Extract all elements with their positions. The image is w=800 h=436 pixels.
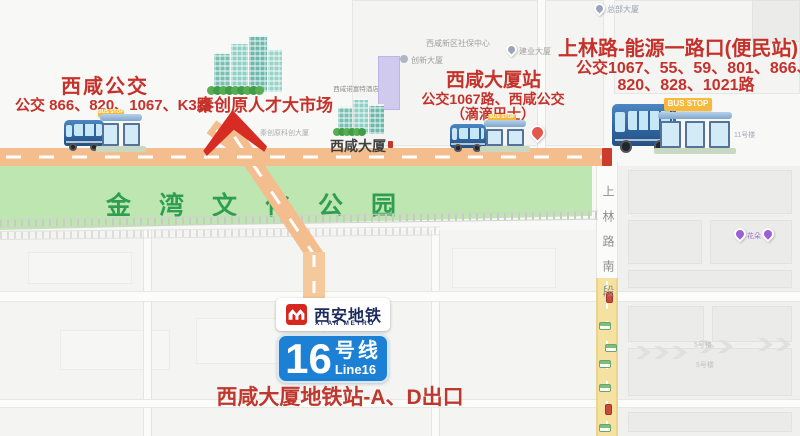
map-block xyxy=(628,220,702,264)
mini-bus-icon xyxy=(605,344,617,352)
map-block xyxy=(628,170,792,214)
map-block xyxy=(712,306,792,342)
bus-stop-sign: BUS STOP xyxy=(664,98,712,111)
building-icon xyxy=(268,48,282,92)
map-block xyxy=(628,270,792,288)
map-block xyxy=(628,306,704,342)
metro-exit-label: 西咸大厦地铁站-A、D出口 xyxy=(160,386,520,410)
bus-shelter-icon: BUS STOP xyxy=(658,112,732,154)
stop-routes1-shanglin: 公交1067、55、59、801、866、 xyxy=(576,60,796,78)
building-name-label: 西咸大厦 xyxy=(328,136,388,156)
stop-title-xixian-bus: 西咸公交 xyxy=(35,76,175,99)
poi-label: 11号楼 xyxy=(734,130,755,140)
map-block xyxy=(452,248,556,288)
road-name-label: 上林路南段 xyxy=(600,185,617,310)
stop-routes2-shanglin: 820、828、1021路 xyxy=(576,77,796,95)
tree-icon xyxy=(210,86,264,95)
road-chevrons-icon xyxy=(636,346,687,359)
bus-shelter-icon: BUS STOP xyxy=(100,114,142,152)
building-poi-icon xyxy=(400,55,408,63)
metro-logo: 西安地铁 XI'AN METRO xyxy=(276,298,390,331)
route-vertical-road xyxy=(303,252,325,304)
poi-label: 花朵 xyxy=(747,231,761,241)
map-block xyxy=(60,330,170,370)
poi-label: 总部大厦 xyxy=(607,4,639,15)
poi-label: 5号楼 xyxy=(696,360,714,370)
road-chevrons-icon xyxy=(758,338,791,351)
map-block xyxy=(710,220,792,264)
line-suffix: 号线 xyxy=(335,340,381,362)
line16-badge: 16 号线 Line16 xyxy=(277,334,389,383)
mini-bus-icon xyxy=(599,360,611,368)
transit-map: 金湾文化公园 上林路南段 西咸新区社保中心 创新大厦 建业大厦 总部大厦 xyxy=(0,0,800,436)
poi-label: 建业大厦 xyxy=(519,46,551,57)
poi-label: 西咸新区社保中心 xyxy=(426,38,490,49)
map-block xyxy=(752,0,800,42)
building-icon xyxy=(231,42,248,92)
mini-bus-icon xyxy=(599,424,611,432)
mini-bus-icon xyxy=(599,384,611,392)
metro-name-en: XI'AN METRO xyxy=(315,320,375,327)
hotel-label: 西咸诺富特酒店 xyxy=(330,83,382,93)
building-icon xyxy=(369,104,384,134)
minor-road xyxy=(0,291,800,302)
market-sub-label: 秦创原科创大厦 xyxy=(260,128,309,138)
car-icon xyxy=(605,404,612,415)
map-block xyxy=(28,252,132,284)
building-marker-dot xyxy=(388,141,393,148)
metro-logo-icon xyxy=(286,304,307,325)
mini-bus-icon xyxy=(599,322,611,330)
road-end-marker xyxy=(602,148,612,166)
stop-title-daxia: 西咸大厦站 xyxy=(446,70,538,92)
poi-label: 创新大厦 xyxy=(411,55,443,66)
building-icon xyxy=(249,35,267,92)
map-block xyxy=(628,412,792,432)
poi-label: 5号楼 xyxy=(694,340,712,350)
line-en: Line16 xyxy=(335,362,376,378)
line-number: 16 xyxy=(285,338,332,380)
tree-icon xyxy=(336,128,366,136)
stop-routes-daxia: 公交1067路、西咸公交 xyxy=(420,91,566,107)
bus-shelter-icon: BUS STOP xyxy=(484,120,526,152)
market-title: 秦创原人才大市场 xyxy=(190,96,340,116)
stop-title-shanglin: 上林路-能源一路口(便民站) xyxy=(558,38,796,61)
